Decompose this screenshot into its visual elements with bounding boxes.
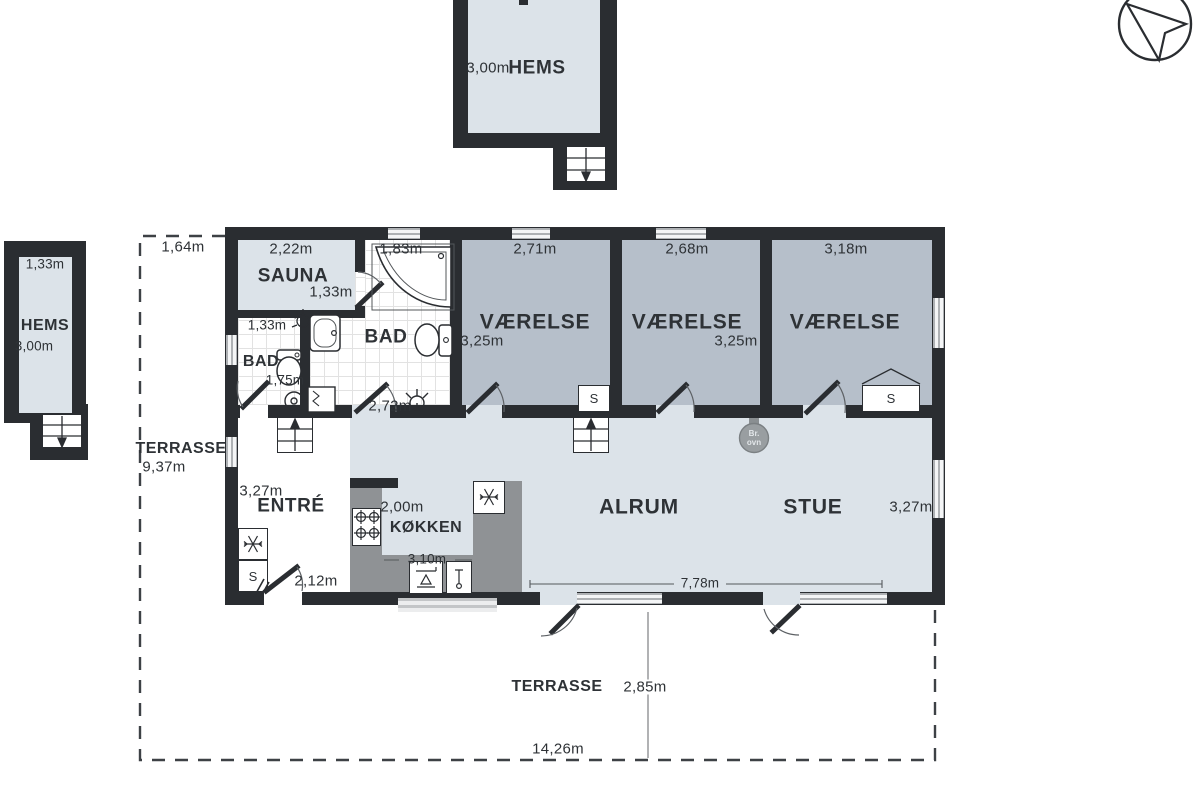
north-arrow-icon: [1119, 0, 1191, 60]
bad-small-width-dim: 1,33m: [248, 318, 287, 332]
window-left-bad: [226, 335, 237, 365]
upper-hems-label: HEMS: [508, 59, 565, 78]
bedroom-1-height-dim: 3,25m: [460, 334, 503, 349]
bedroom-3-label: VÆRELSE: [790, 312, 901, 333]
upper-hems-dim: 3,00m: [466, 61, 509, 76]
closet-bedroom-1: S: [578, 385, 610, 412]
floor-plan: S S S: [0, 0, 1200, 800]
stove: [352, 508, 381, 546]
closet-bedroom-3: S: [862, 385, 920, 412]
room-bad-large-lower: [310, 318, 365, 405]
left-hems-height-dim: 3,00m: [15, 339, 54, 353]
bad-large-door-dim: 2,72m: [368, 399, 411, 414]
window-top-bedroom-2: [656, 228, 706, 239]
bad-small-door-opening: [240, 405, 268, 418]
bedroom-3-door-opening: [803, 405, 846, 418]
bad-large-label: BAD: [365, 328, 408, 347]
window-right-stue: [933, 460, 944, 518]
kokken-counter-dim: 2,00m: [380, 500, 423, 515]
alrum-width-dim: 7,78m: [681, 576, 720, 590]
terrace-bottom-label: TERRASSE: [511, 679, 602, 695]
window-top-bad: [388, 228, 420, 239]
sauna-height-dim: 1,33m: [309, 285, 352, 300]
sauna-door-opening: [355, 272, 365, 306]
kitchen-sink: [446, 561, 472, 594]
alrum-terrace-door: [552, 607, 577, 632]
upper-hems-wall-mark: [519, 0, 528, 5]
left-hems-label: HEMS: [21, 318, 69, 334]
entre-door-opening: [264, 592, 302, 605]
alrum-terrace-door-opening: [540, 592, 577, 605]
closet-letter: S: [887, 391, 896, 406]
kitchen-outside-step: [398, 598, 497, 612]
wood-stove-label-1: Br.: [749, 430, 760, 438]
alrum-label: ALRUM: [599, 497, 679, 518]
room-bad-large-upper: [365, 240, 450, 405]
closet-entre: S: [238, 560, 268, 592]
closet-letter: S: [590, 391, 599, 406]
bad-large-width-dim: 1,83m: [379, 242, 422, 257]
stue-height-dim: 3,27m: [889, 500, 932, 515]
bedroom-3-width-dim: 3,18m: [824, 242, 867, 257]
terrace-left-label: TERRASSE: [135, 441, 226, 457]
bedroom-2-height-dim: 3,25m: [714, 334, 757, 349]
closet-letter: S: [249, 569, 258, 584]
bedroom-1-width-dim: 2,71m: [513, 242, 556, 257]
stue-terrace-door: [773, 607, 798, 631]
bedroom-1-door-opening: [466, 405, 502, 418]
wood-stove-label-2: ovn: [747, 439, 761, 447]
bad-small-height-dim: 1,75m: [266, 373, 305, 387]
kitchen-half-wall: [350, 478, 398, 488]
window-top-bedroom-1: [512, 228, 550, 239]
window-bottom-stue: [800, 593, 887, 604]
terrace-offset-dim: 1,64m: [161, 240, 204, 255]
entre-stairs: [277, 417, 313, 453]
fridge: [473, 481, 505, 514]
entre-door-dim: 2,12m: [294, 574, 337, 589]
left-hems-floor: [19, 257, 72, 413]
upper-hems-stairs: [566, 146, 606, 182]
terrace-bottom-width-dim: 14,26m: [532, 742, 584, 757]
terrace-bottom-depth-dim: 2,85m: [620, 680, 669, 695]
bedroom-2-label: VÆRELSE: [632, 312, 743, 333]
bedroom-2-width-dim: 2,68m: [665, 242, 708, 257]
left-hems-stairs: [42, 414, 82, 448]
left-hems-width-dim: 1,33m: [26, 257, 65, 271]
window-left-entre: [226, 437, 237, 467]
kokken-label: KØKKEN: [390, 520, 462, 536]
entre-freezer: [238, 528, 268, 560]
bedroom-1-label: VÆRELSE: [480, 312, 591, 333]
stue-label: STUE: [783, 497, 842, 518]
entre-label: ENTRÉ: [257, 497, 324, 516]
terrace-left-length-dim: 9,37m: [142, 460, 185, 475]
kokken-width-dim: 3,10m: [408, 552, 447, 566]
window-right-bedroom-3: [933, 298, 944, 348]
alrum-stairs: [573, 417, 609, 453]
stue-terrace-door-opening: [763, 592, 800, 605]
window-bottom-alrum: [577, 593, 662, 604]
bad-small-label: BAD: [243, 354, 279, 370]
sauna-width-dim: 2,22m: [269, 242, 312, 257]
bedroom-2-door-opening: [656, 405, 694, 418]
